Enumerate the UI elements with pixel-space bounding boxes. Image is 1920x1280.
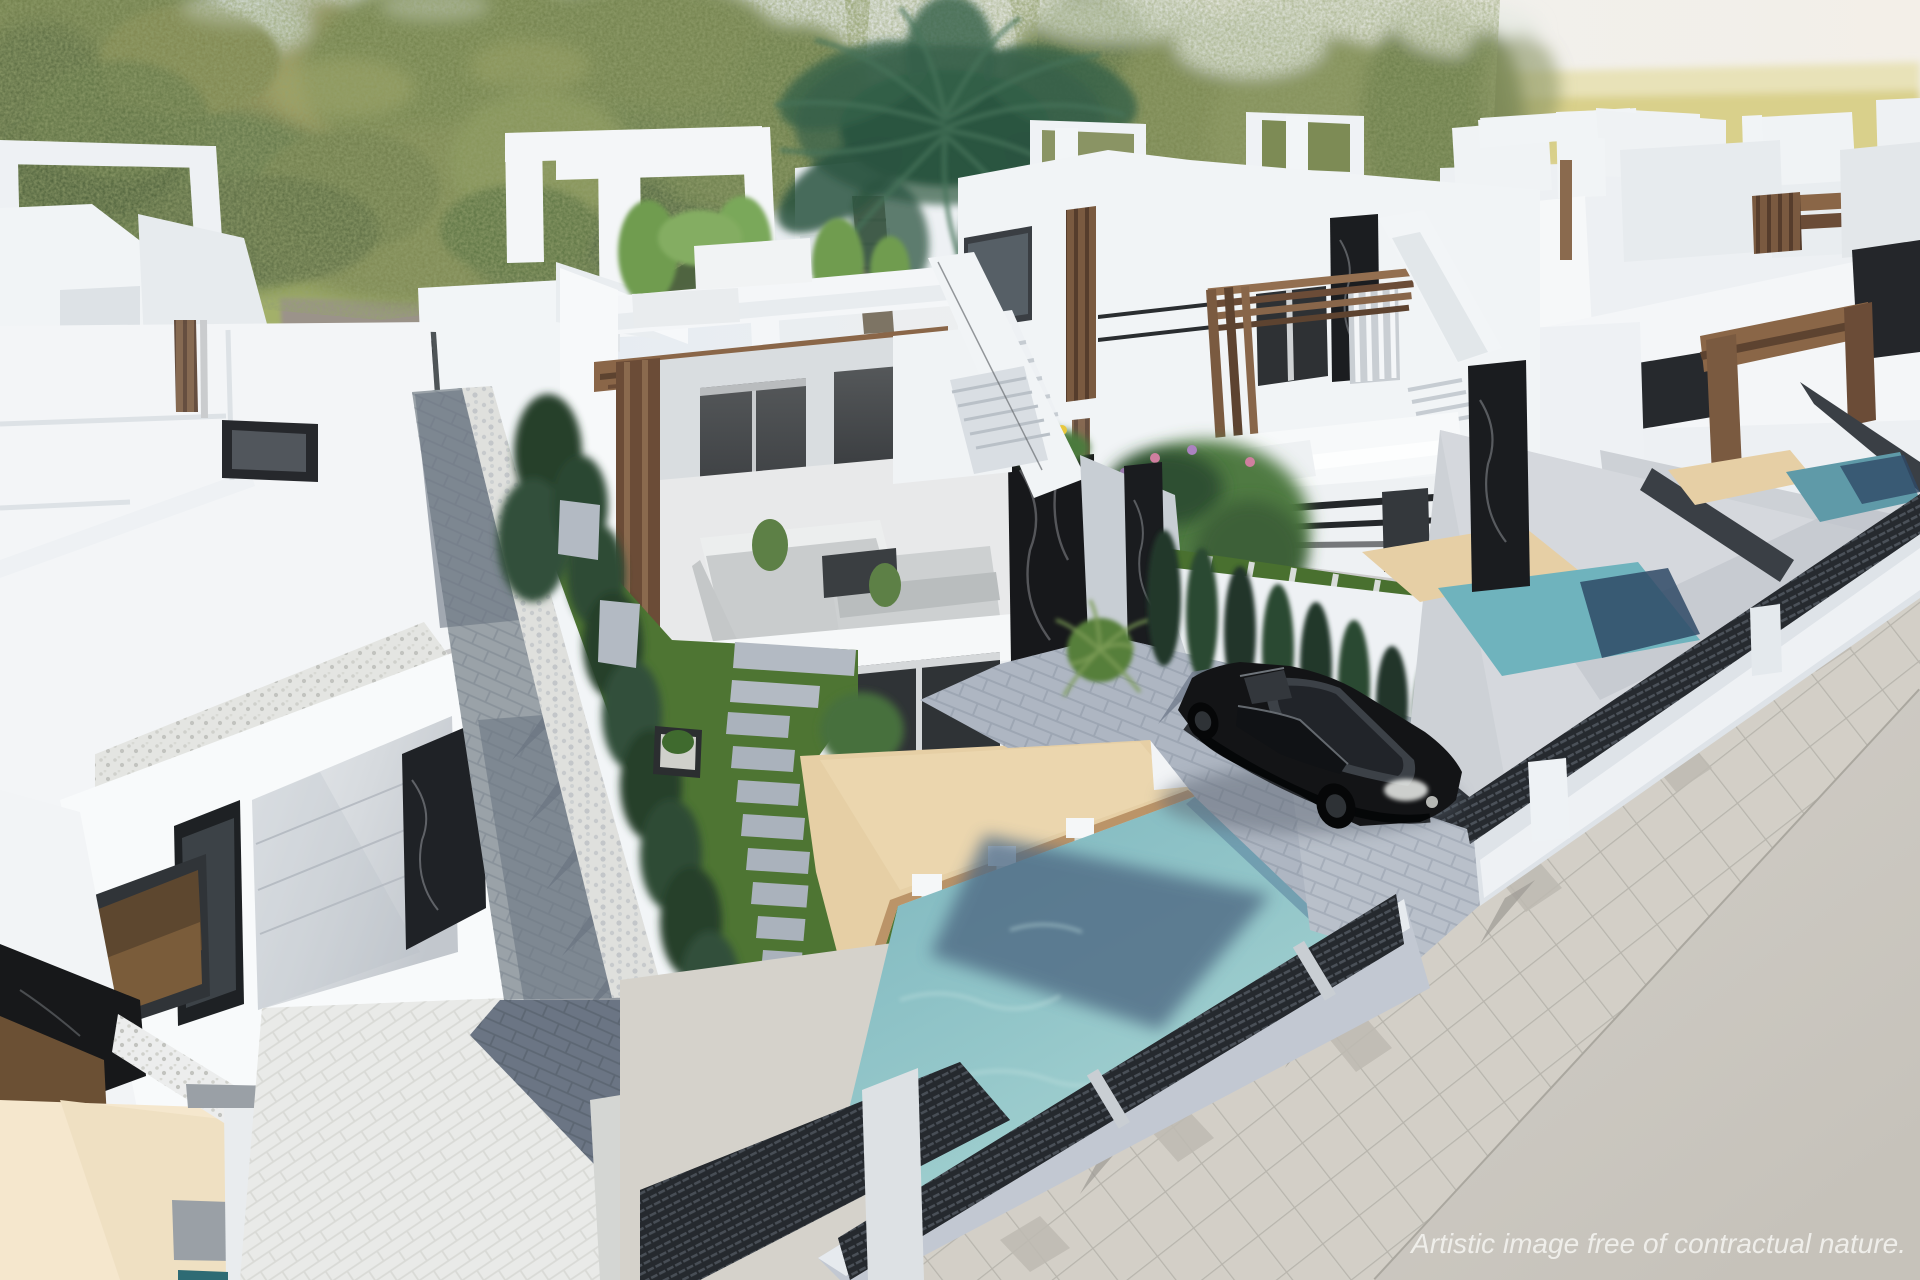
svg-text:Artistic image free of contrac: Artistic image free of contractual natur… <box>1409 1228 1906 1259</box>
